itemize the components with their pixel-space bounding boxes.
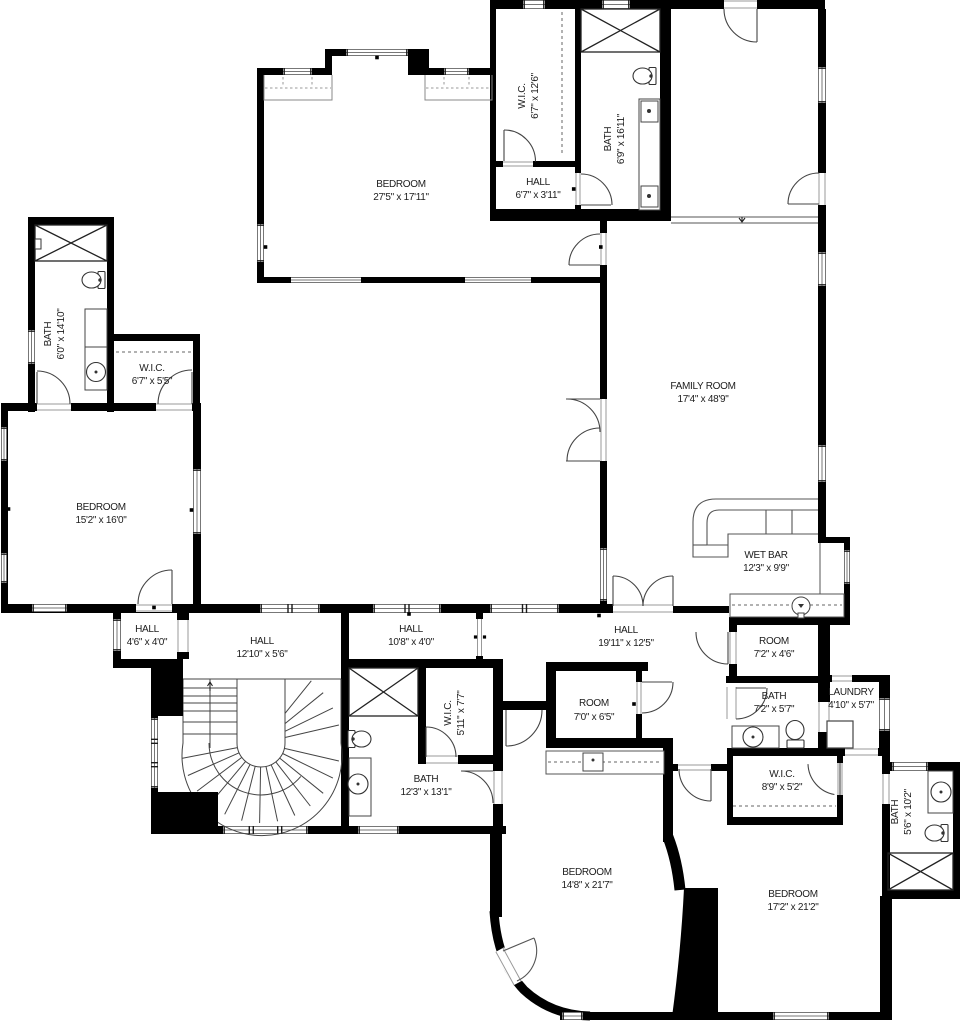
svg-text:HALL: HALL (250, 636, 275, 647)
svg-text:7'0" x 6'5": 7'0" x 6'5" (574, 712, 615, 723)
svg-text:19'11" x 12'5": 19'11" x 12'5" (598, 638, 654, 649)
svg-text:BEDROOM: BEDROOM (376, 179, 426, 190)
svg-text:6'0" x 14'10": 6'0" x 14'10" (56, 308, 67, 360)
svg-text:BEDROOM: BEDROOM (562, 867, 612, 878)
svg-text:BATH: BATH (890, 800, 901, 825)
svg-text:27'5" x 17'11": 27'5" x 17'11" (373, 192, 429, 203)
svg-text:15'2" x 16'0": 15'2" x 16'0" (76, 515, 128, 526)
svg-text:7'2" x 4'6": 7'2" x 4'6" (754, 649, 795, 660)
svg-text:W.I.C.: W.I.C. (139, 363, 164, 374)
svg-text:W.I.C.: W.I.C. (517, 83, 528, 108)
svg-text:14'8" x 21'7": 14'8" x 21'7" (562, 880, 614, 891)
svg-text:12'10" x 5'6": 12'10" x 5'6" (237, 649, 289, 660)
svg-text:8'9" x 5'2": 8'9" x 5'2" (762, 782, 803, 793)
svg-text:BATH: BATH (43, 322, 54, 347)
svg-text:BEDROOM: BEDROOM (768, 889, 818, 900)
svg-text:17'2" x 21'2": 17'2" x 21'2" (768, 902, 820, 913)
svg-text:LAUNDRY: LAUNDRY (828, 687, 874, 698)
svg-text:BEDROOM: BEDROOM (76, 502, 126, 513)
svg-text:HALL: HALL (135, 624, 160, 635)
svg-text:W.I.C.: W.I.C. (443, 700, 454, 725)
svg-text:12'3" x 9'9": 12'3" x 9'9" (743, 563, 789, 574)
svg-text:BATH: BATH (414, 774, 439, 785)
svg-text:7'2" x 5'7": 7'2" x 5'7" (754, 704, 795, 715)
svg-text:HALL: HALL (399, 624, 424, 635)
svg-text:WET BAR: WET BAR (744, 550, 787, 561)
svg-text:5'6" x 10'2": 5'6" x 10'2" (903, 788, 914, 834)
svg-text:ROOM: ROOM (759, 636, 789, 647)
svg-text:17'4" x 48'9": 17'4" x 48'9" (678, 394, 730, 405)
svg-text:12'3" x 13'1": 12'3" x 13'1" (401, 787, 453, 798)
svg-text:6'9" x 16'11": 6'9" x 16'11" (616, 113, 627, 164)
svg-text:10'8" x 4'0": 10'8" x 4'0" (388, 637, 434, 648)
svg-text:ROOM: ROOM (579, 698, 609, 709)
svg-text:6'7" x 3'11": 6'7" x 3'11" (516, 190, 562, 201)
svg-text:4'10" x 5'7": 4'10" x 5'7" (828, 700, 874, 711)
svg-text:6'7" x 12'6": 6'7" x 12'6" (530, 72, 541, 118)
svg-text:BATH: BATH (762, 691, 787, 702)
svg-text:FAMILY ROOM: FAMILY ROOM (670, 381, 735, 392)
svg-text:5'11" x 7'7": 5'11" x 7'7" (456, 690, 467, 736)
svg-text:HALL: HALL (526, 177, 551, 188)
svg-text:W.I.C.: W.I.C. (769, 769, 794, 780)
svg-text:BATH: BATH (603, 127, 614, 152)
svg-text:HALL: HALL (614, 625, 639, 636)
svg-text:6'7" x 5'5": 6'7" x 5'5" (132, 376, 173, 387)
svg-text:4'6" x 4'0": 4'6" x 4'0" (127, 637, 168, 648)
